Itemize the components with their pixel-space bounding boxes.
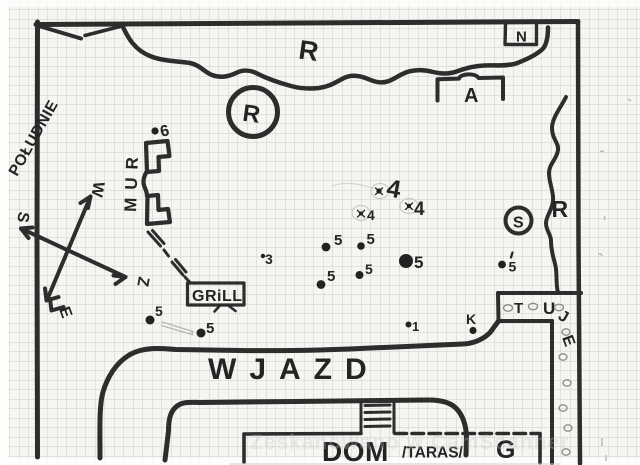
svg-text:5: 5 [509,259,517,275]
svg-text:A: A [464,85,478,107]
svg-text:R: R [297,35,320,67]
svg-text:1: 1 [412,319,419,334]
svg-text:MUR: MUR [121,149,142,212]
svg-text:WJAZD: WJAZD [208,353,380,386]
svg-text:4: 4 [367,207,375,223]
svg-text:5: 5 [334,232,342,249]
svg-text:3: 3 [265,251,273,267]
svg-text:4: 4 [414,199,425,220]
svg-text:Zeskanowano w CamScanner: Zeskanowano w CamScanner [250,431,569,454]
svg-text:T: T [514,300,523,317]
svg-text:5: 5 [414,253,423,272]
svg-text:5: 5 [155,303,163,319]
svg-text:N: N [516,29,527,46]
svg-text:5: 5 [206,320,214,337]
svg-text:S: S [513,215,524,232]
svg-text:5: 5 [367,231,375,248]
svg-text:5: 5 [327,268,335,285]
svg-text:GRiLL: GRiLL [192,288,243,305]
svg-text:5: 5 [365,261,373,277]
svg-text:K: K [466,311,476,327]
svg-text:U: U [543,299,555,318]
svg-text:R: R [552,196,569,222]
